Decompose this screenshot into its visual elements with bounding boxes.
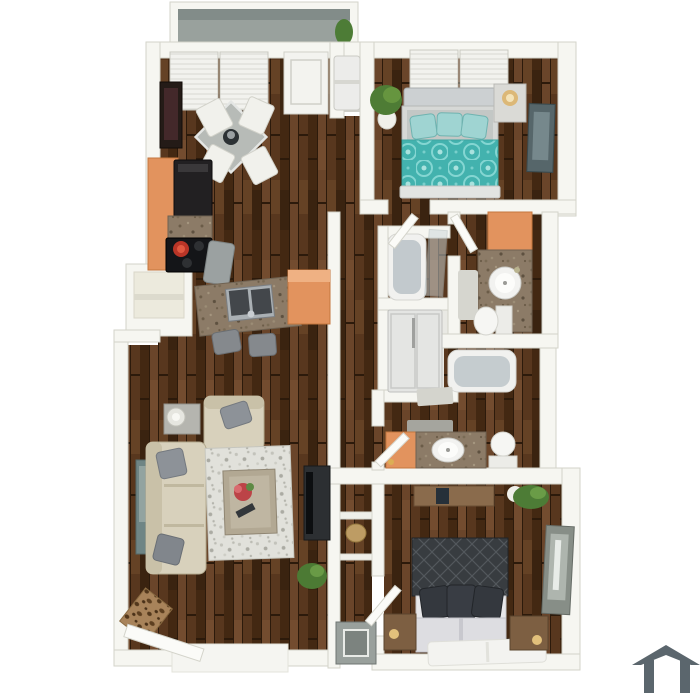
bathtub-1-basin [393, 240, 421, 294]
wall-bath2-right [540, 348, 556, 468]
stove-burner-hot-core [177, 245, 185, 253]
kitchen-counter-mid [168, 216, 212, 240]
bedroom2-nightstand-left [384, 614, 416, 650]
closet-shelf [340, 554, 372, 560]
bedroom1-lamp-core [506, 94, 514, 102]
bed1-comforter [402, 140, 498, 188]
dining-wall-art-inner [164, 88, 178, 140]
wall-left-join [114, 330, 160, 342]
sofa-cushion-seam [164, 524, 204, 527]
stove-burner [182, 258, 192, 268]
bar-stool [211, 329, 241, 355]
wall-bedroom1-right [558, 42, 576, 216]
patio-plant [335, 19, 353, 45]
living-plant-highlight [310, 565, 324, 577]
tv-screen [306, 472, 313, 534]
bedroom2-lamp-right [532, 635, 542, 645]
brand-house-logo-leg-right [680, 660, 690, 693]
elements-root [114, 2, 700, 693]
brand-house-logo-leg-left [644, 660, 654, 693]
closet-shelf [340, 512, 372, 519]
pantry-shelf [134, 294, 184, 300]
wall-bath2-left-top [372, 390, 384, 426]
bedroom2-dresser-item [436, 488, 449, 504]
bath2-sink-drain [446, 448, 450, 452]
bath2-cabinet-knob [388, 459, 394, 465]
bath1-faucet [514, 267, 520, 273]
closet-basket [346, 524, 366, 542]
wall-bath1-right [542, 212, 558, 348]
patio-floor-shade [178, 9, 350, 20]
bedroom2-nightstand-right [510, 616, 548, 650]
bed1-pillow [410, 113, 438, 139]
utility-unit-frame [344, 630, 368, 656]
laundry-appliance-handle [412, 318, 415, 348]
bed1-pillow [437, 113, 463, 137]
bedroom2-plant-highlight [530, 487, 546, 499]
table-greenery [246, 483, 254, 491]
bedroom2-lamp-left [389, 629, 399, 639]
kitchen-fridge-highlight [178, 164, 208, 172]
bath2-toilet-tank [489, 456, 517, 468]
wall-tubroom-left [378, 226, 388, 402]
bedroom1-wall-art-inner [532, 112, 550, 161]
kitchen-faucet [248, 311, 255, 318]
bath2-mat [416, 387, 453, 406]
kitchen-cabinet-right-top [288, 270, 330, 282]
bedroom1-plant-highlight [383, 87, 401, 103]
stove-burner [194, 241, 204, 251]
side-table-lamp-core [172, 413, 180, 421]
floor-passage [330, 116, 362, 212]
wall-bath1-bottom [436, 334, 558, 348]
bed1-footboard [400, 186, 500, 198]
water-heater-band [334, 80, 360, 84]
wall-bath2-bottom [328, 468, 568, 484]
bath2-toilet-bowl [491, 432, 515, 456]
bathtub-2-basin [454, 356, 510, 387]
wall-bedroom1-bottom-left [360, 200, 388, 214]
kitchen-sink-basin-right [251, 288, 273, 315]
bath1-toilet-bowl [474, 307, 498, 335]
dining-centerpiece-top [227, 131, 235, 139]
kitchen-sink-basin-left [229, 289, 251, 316]
wall-bedroom1-left [360, 42, 374, 214]
sofa-pillow [155, 447, 187, 479]
bath1-vanity-cabinet [488, 212, 532, 254]
bed1-pillow [461, 113, 489, 139]
table-flowers-highlight [234, 485, 242, 493]
floor-plan-render [0, 0, 700, 700]
bar-stool [248, 333, 276, 357]
bed2-pillow [471, 585, 504, 620]
bath1-mat [458, 270, 478, 320]
floorplan-svg [0, 0, 700, 700]
bath1-sink-drain [503, 281, 507, 285]
wall-bedroom2-left-top [372, 484, 384, 576]
bedroom2-dresser [414, 486, 494, 506]
sofa-cushion-seam [164, 484, 204, 487]
wall-bottom-left [114, 650, 174, 666]
sofa-pillow [152, 533, 185, 566]
